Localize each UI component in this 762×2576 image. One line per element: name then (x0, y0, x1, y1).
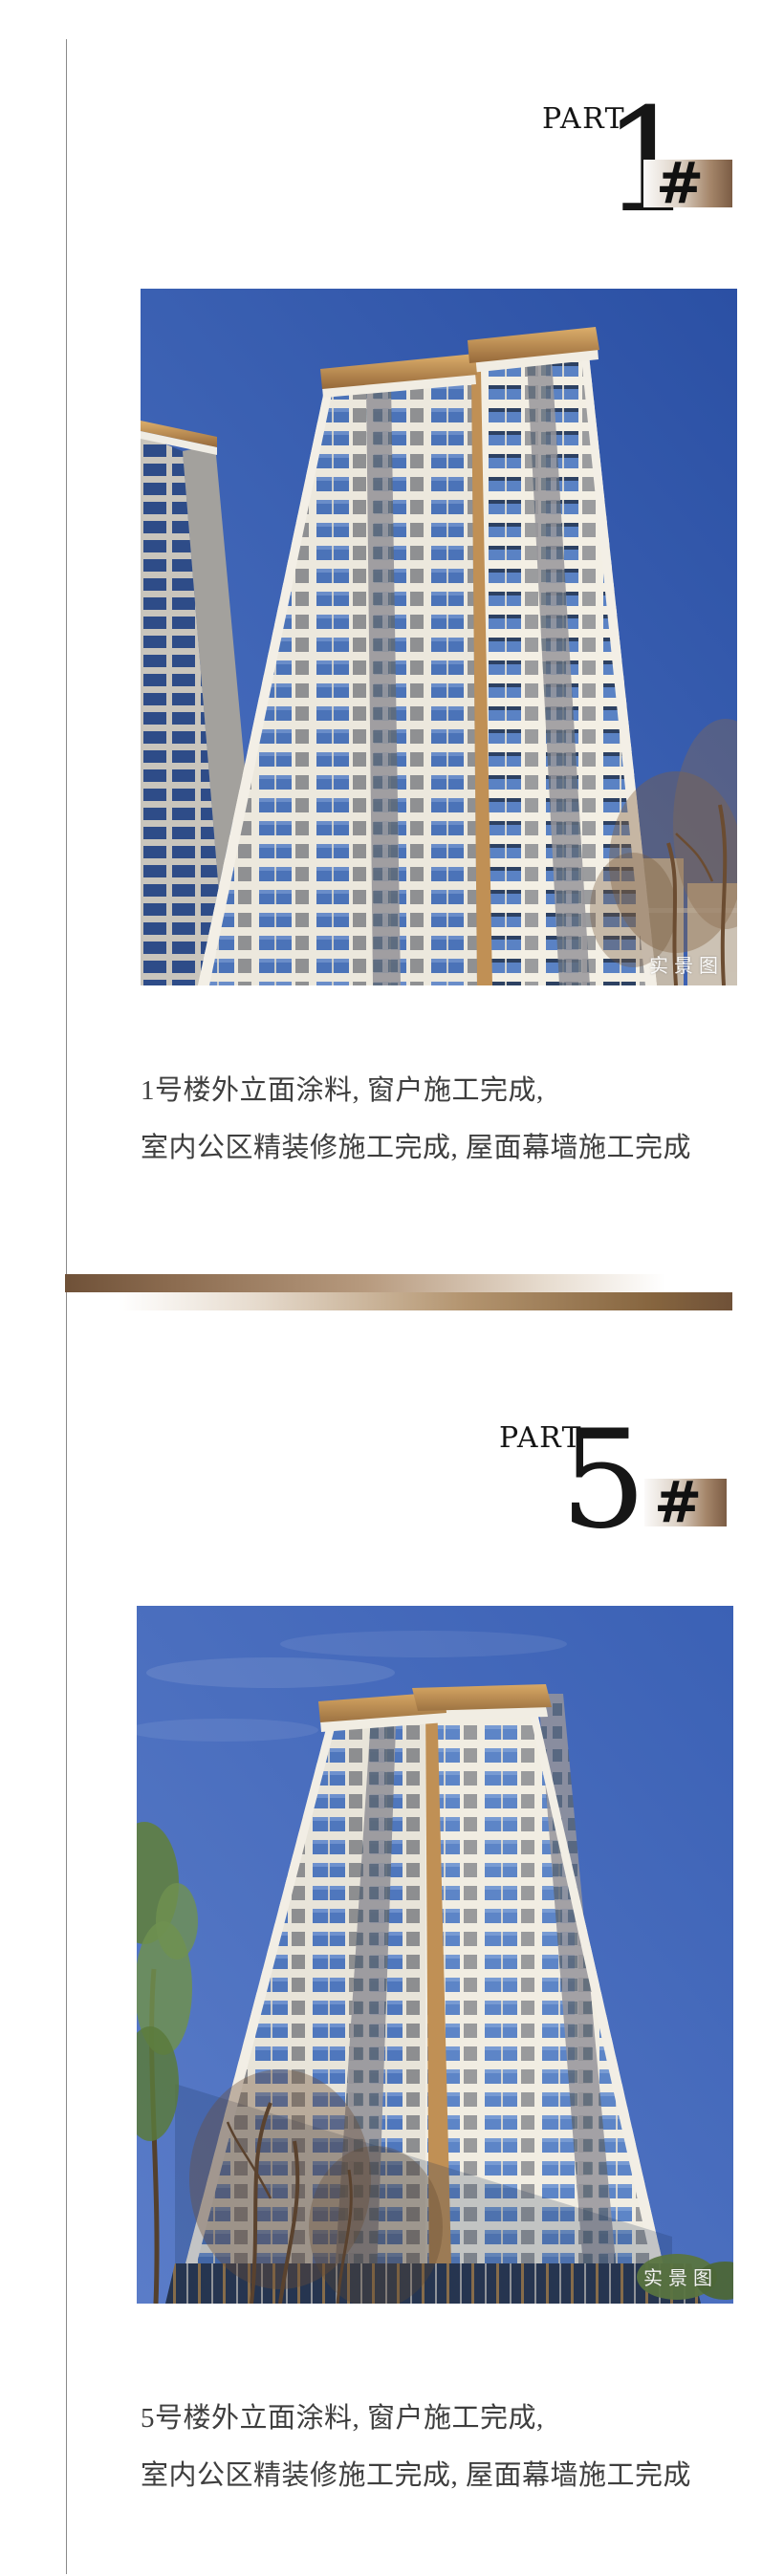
caption-line: 5号楼外立面涂料, 窗户施工完成, (141, 2390, 691, 2447)
building-5-photo: 实景图 (137, 1606, 733, 2304)
photo-watermark: 实景图 (643, 2262, 718, 2290)
part-1-hash-symbol: # (656, 155, 704, 212)
divider-bar-bottom (65, 1292, 732, 1310)
caption-line: 室内公区精装修施工完成, 屋面幕墙施工完成 (141, 2447, 691, 2504)
caption-line: 1号楼外立面涂料, 窗户施工完成, (141, 1062, 691, 1119)
divider-bar-top (65, 1274, 732, 1292)
part-5-hash-symbol: # (654, 1474, 702, 1531)
building-5-illustration (137, 1606, 733, 2304)
photo-watermark: 实景图 (649, 950, 724, 978)
article-page: PART 1 # (0, 0, 762, 2576)
building-5-caption: 5号楼外立面涂料, 窗户施工完成, 室内公区精装修施工完成, 屋面幕墙施工完成 (141, 2390, 691, 2504)
part-5-number: 5 (560, 1413, 646, 1548)
building-1-illustration (141, 289, 737, 985)
caption-line: 室内公区精装修施工完成, 屋面幕墙施工完成 (141, 1119, 691, 1177)
section-divider (65, 1274, 732, 1310)
building-1-caption: 1号楼外立面涂料, 窗户施工完成, 室内公区精装修施工完成, 屋面幕墙施工完成 (141, 1062, 691, 1177)
building-1-photo: 实景图 (141, 289, 737, 985)
